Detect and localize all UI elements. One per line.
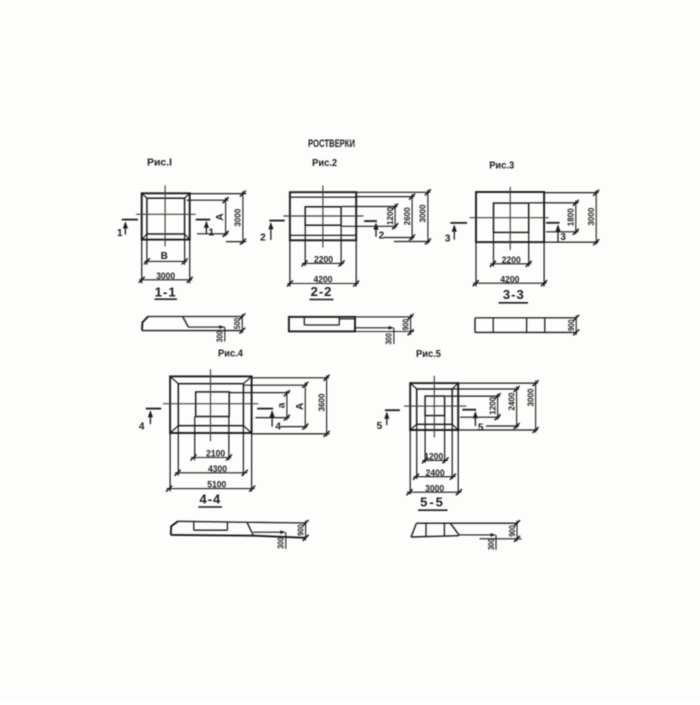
svg-text:4200: 4200 <box>500 274 519 285</box>
svg-text:3000: 3000 <box>233 208 243 226</box>
svg-text:2: 2 <box>260 232 266 243</box>
svg-text:900: 900 <box>507 525 517 537</box>
svg-text:4300: 4300 <box>208 464 227 475</box>
svg-text:5100: 5100 <box>207 480 226 491</box>
svg-text:3: 3 <box>560 232 566 243</box>
svg-text:4: 4 <box>275 421 281 432</box>
svg-text:2200: 2200 <box>314 255 333 266</box>
svg-text:900: 900 <box>400 319 410 331</box>
svg-text:3000: 3000 <box>525 388 535 406</box>
svg-text:Рис.4: Рис.4 <box>218 348 243 360</box>
svg-text:1200: 1200 <box>385 207 395 225</box>
svg-text:300: 300 <box>486 538 496 550</box>
svg-text:2400: 2400 <box>506 392 516 410</box>
svg-text:4: 4 <box>139 422 145 433</box>
svg-text:3000: 3000 <box>156 271 175 282</box>
svg-text:2400: 2400 <box>426 468 445 479</box>
svg-text:5: 5 <box>478 422 484 433</box>
svg-text:3000: 3000 <box>586 207 596 225</box>
svg-text:1: 1 <box>209 228 215 239</box>
svg-text:а: а <box>277 402 288 408</box>
svg-text:Рис.I: Рис.I <box>147 157 172 169</box>
svg-text:1-1: 1-1 <box>155 285 177 300</box>
svg-text:А: А <box>215 213 226 220</box>
svg-text:3-3: 3-3 <box>503 287 525 302</box>
svg-text:300: 300 <box>215 331 225 343</box>
svg-text:2-2: 2-2 <box>311 284 333 299</box>
svg-text:4-4: 4-4 <box>200 492 222 507</box>
svg-text:Рис.5: Рис.5 <box>416 348 441 360</box>
svg-text:1200: 1200 <box>487 397 497 415</box>
svg-text:2100: 2100 <box>206 449 225 460</box>
svg-text:2200: 2200 <box>502 255 521 266</box>
svg-text:2600: 2600 <box>402 207 412 225</box>
svg-text:5-5: 5-5 <box>420 495 445 510</box>
svg-text:900: 900 <box>295 524 305 536</box>
svg-text:1: 1 <box>117 228 123 239</box>
svg-text:5: 5 <box>377 421 383 432</box>
svg-text:300: 300 <box>384 333 394 345</box>
svg-text:1800: 1800 <box>566 208 576 226</box>
svg-text:300: 300 <box>276 537 286 549</box>
svg-text:Рис.2: Рис.2 <box>312 157 337 169</box>
svg-text:3600: 3600 <box>316 393 326 411</box>
svg-text:РОСТВЕРКИ: РОСТВЕРКИ <box>308 138 355 150</box>
svg-text:А: А <box>295 403 306 410</box>
svg-text:1200: 1200 <box>424 452 443 463</box>
svg-text:3: 3 <box>445 233 451 244</box>
svg-text:В: В <box>161 251 168 262</box>
svg-text:3000: 3000 <box>418 204 428 222</box>
svg-text:900: 900 <box>566 319 576 331</box>
svg-text:Рис.3: Рис.3 <box>489 160 514 172</box>
svg-text:2: 2 <box>379 231 385 242</box>
svg-text:3000: 3000 <box>425 483 444 494</box>
svg-text:500: 500 <box>232 318 242 330</box>
